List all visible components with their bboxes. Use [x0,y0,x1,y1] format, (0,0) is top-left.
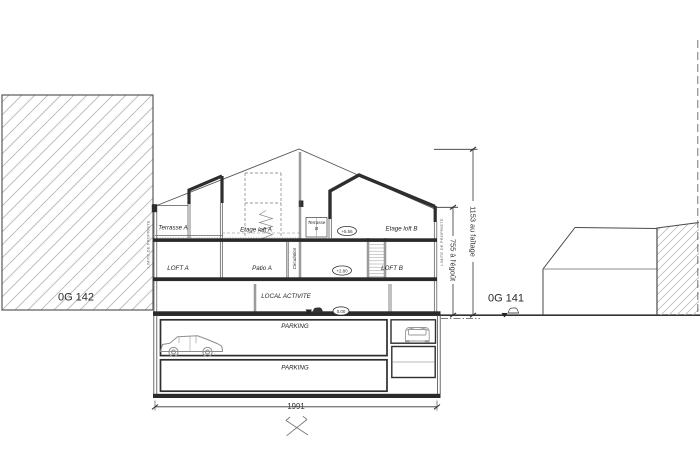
room-terrasse-a: Terrasse A [158,225,187,232]
room-loft-b: LOFT B [381,265,403,272]
car-side-view [161,336,223,357]
level-marker-loft: +2.80 [333,266,352,275]
section-cut-elements [152,175,435,222]
section-drawing-page: 0G 142 0G 141 [0,0,700,475]
property-limit-right-label: LIMITE DE PROPRIETE [439,218,444,266]
room-terrasse-b-line1: Terrasse [308,220,326,225]
property-limit-left-label: LIMITE DE PROPRIETE [146,220,151,268]
walls-thin [154,152,437,315]
room-parking-lower: PARKING [281,365,309,372]
room-circulation: Circulation [292,247,297,269]
neighbour-building [543,40,699,315]
level-ground-value: 0.00 [337,309,346,314]
room-parking-upper: PARKING [281,323,309,330]
room-loft-a: LOFT A [167,265,188,272]
level-loft-value: +2.80 [336,269,348,274]
parcel-left-label: 0G 142 [58,292,94,304]
dimension-eaves-label: 755 à l'égoût [449,239,458,281]
dimension-width-label: 1991 [287,402,304,411]
parcel-left-hatch [2,95,153,310]
crossed-axes-symbol [286,416,308,436]
parcel-right-label: 0G 141 [488,293,524,305]
section-drawing: 0G 142 0G 141 [0,0,700,475]
room-etage-loft-a: Etage loft A [240,227,272,234]
dimension-ridge-label: 1153 au faîtage [469,206,478,257]
level-marker-etage: +5.56 [338,226,357,235]
room-etage-loft-b: Etage loft B [386,226,418,233]
stair-zigzag-symbol [260,211,273,239]
ground-line [153,315,700,318]
street-level-marker [502,308,520,318]
room-patio-a: Patio A [252,265,272,272]
roof-elevation-outline [153,149,437,210]
room-local-activite: LOCAL ACTIVITE [261,293,311,300]
car-rear-view [405,328,429,343]
room-terrasse-b-line2: B [315,226,318,231]
level-etage-value: +5.56 [341,229,353,234]
